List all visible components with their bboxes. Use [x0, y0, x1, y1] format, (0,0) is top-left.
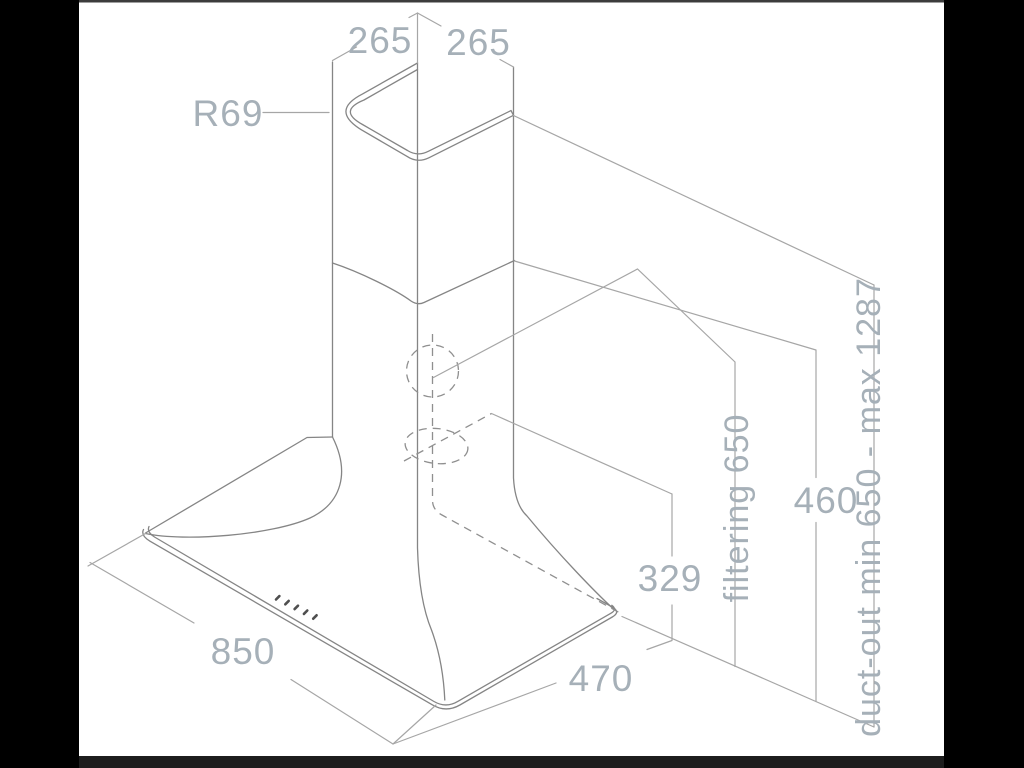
top-letterbox-strip [0, 0, 1024, 3]
hood-outline [143, 62, 617, 709]
duct-center-path [433, 334, 621, 613]
label-filtering-650: filtering 650 [718, 414, 756, 603]
canopy-rim-outer [143, 530, 617, 709]
label-470-depth: 470 [569, 658, 634, 699]
base-extension-line [622, 617, 874, 728]
label-265-right: 265 [446, 22, 511, 63]
chimney-front-edge [418, 164, 445, 701]
canopy-left-hip [146, 437, 333, 533]
label-850-width: 850 [211, 631, 276, 672]
dim-filtering-line [434, 269, 736, 667]
screenshot-frame: 265 265 R69 850 470 329 460 filtering 65… [0, 0, 1024, 768]
hood-dimensional-drawing: 265 265 R69 850 470 329 460 filtering 65… [0, 0, 1024, 768]
right-letterbox-bar [944, 0, 1024, 768]
chimney-right-edge [514, 67, 614, 609]
label-329-height: 329 [638, 558, 703, 599]
chimney-section-seam [333, 261, 515, 304]
canopy-rim-inner [148, 527, 614, 705]
label-duct-out-range: duct-out min 650 - max 1287 [850, 277, 888, 737]
chimney-rim-inner [350, 70, 511, 154]
bottom-letterbox-strip [0, 756, 1024, 768]
control-buttons [276, 596, 317, 619]
label-265-left: 265 [348, 20, 413, 61]
canopy-left-shoulder-curve [146, 437, 342, 537]
chimney-rim-outer [346, 63, 514, 160]
left-letterbox-bar [0, 0, 79, 768]
dim-329-line [492, 414, 673, 641]
dim-duct-out-line [514, 116, 875, 728]
label-460-height: 460 [794, 480, 859, 521]
label-radius-r69: R69 [193, 93, 264, 134]
rear-duct-outlet-ellipse [403, 425, 469, 466]
